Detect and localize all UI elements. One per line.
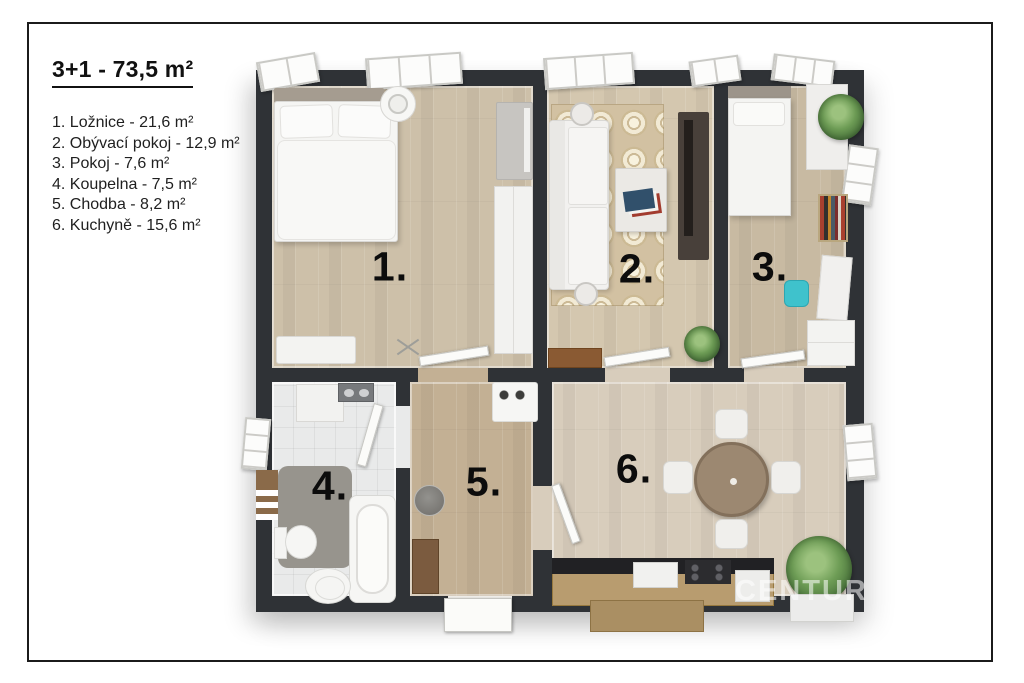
room-label-living: 2. [619,246,655,293]
shoe-cabinet [412,539,439,594]
washing-machine [296,384,344,422]
bench [276,336,356,364]
potted-plant [684,326,720,362]
floorplan-page: 3+1 - 73,5 m² 1. Ložnice - 21,6 m² 2. Ob… [0,0,1024,683]
legend-item-kuchyne: 6. Kuchyně - 15,6 m² [52,216,240,237]
legend-item-obyvaci-pokoj: 2. Obývací pokoj - 12,9 m² [52,134,240,155]
room-label-bathroom: 4. [312,463,348,510]
entry-door [444,598,512,632]
kitchen-sink [633,562,678,588]
bathtub [349,495,396,603]
page-title: 3+1 - 73,5 m² [52,56,193,88]
room-label-bedroom: 1. [372,244,408,291]
floor-lamp [574,282,598,306]
dining-chair [663,461,693,494]
room-label-pokoj: 3. [752,244,788,291]
magazines [623,188,655,212]
desk [816,255,852,321]
legend-item-loznice: 1. Ložnice - 21,6 m² [52,113,240,134]
watermark: CENTUR [735,575,866,607]
door-opening-bath-hall [396,406,410,468]
bookshelf [818,194,848,242]
legend-item-chodba: 5. Chodba - 8,2 m² [52,195,240,216]
tv-cabinet [678,112,709,260]
radiator-panel [524,108,530,172]
door-opening-bedroom-hall [418,368,488,382]
drawer-unit [807,320,855,366]
duvet [277,140,396,240]
door-opening-pokoj-kitchen [744,368,804,382]
sofa [549,120,609,290]
plant-on-wardrobe [818,94,864,140]
pillow [733,102,785,126]
single-bed-headboard [728,86,791,98]
room-legend: 1. Ložnice - 21,6 m² 2. Obývací pokoj - … [52,113,240,237]
room-label-kitchen: 6. [616,446,652,493]
window-kitchen-side [843,423,878,481]
dining-table [694,442,769,517]
dining-chair [715,409,748,439]
dining-chair [715,519,748,549]
room-label-hall: 5. [466,459,502,506]
floor-lamp [570,102,594,126]
boiler [492,382,538,422]
stove [685,560,731,584]
window-bedroom-right [365,52,463,91]
bathroom-sink-counter [338,383,374,402]
window-living [543,52,635,90]
wardrobe-bedroom [494,186,533,354]
toilet [285,525,317,559]
dining-chair [771,461,801,494]
table-lamp [388,94,408,114]
legend-item-koupelna: 4. Koupelna - 7,5 m² [52,175,240,196]
round-mirror [414,485,445,516]
doormat [548,348,602,368]
kitchen-island [590,600,704,632]
legend-item-pokoj: 3. Pokoj - 7,6 m² [52,154,240,175]
window-bathroom [241,417,271,471]
towel-shelf [256,470,278,520]
door-opening-hall-kitchen [533,486,552,550]
door-opening-living-kitchen [605,368,670,382]
pedestal-sink [305,568,351,604]
pillow [279,104,333,139]
watermark-clip: CENTUR [735,574,866,608]
